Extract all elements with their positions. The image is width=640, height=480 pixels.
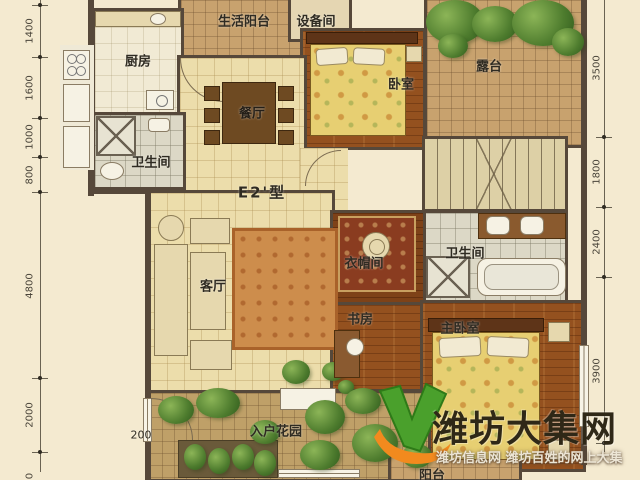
bedroom2-headboard: [306, 32, 418, 44]
dimension-line-right: [604, 0, 605, 452]
kitchen-sink: [150, 13, 166, 25]
label-entry-garden: 入户花园: [250, 421, 302, 440]
dining-chair: [278, 86, 294, 101]
dining-chair: [204, 108, 220, 123]
sink2-right: [520, 216, 544, 235]
label-kitchen: 厨房: [125, 51, 151, 70]
dim-left-1000: 1000: [25, 124, 36, 149]
garden-plant: [158, 396, 194, 424]
dim-left-1600: 1600: [25, 75, 36, 100]
label-living: 客厅: [200, 276, 226, 295]
living-rug: [232, 228, 338, 350]
dim-left-800: 800: [25, 165, 36, 184]
fridge: [63, 84, 90, 122]
label-master-bedroom: 主卧室: [440, 318, 479, 337]
shower2: [426, 256, 470, 298]
garden-plant: [232, 444, 254, 470]
master-nightstand: [548, 322, 570, 342]
watermark-brand: 潍坊大集网: [432, 400, 640, 452]
stove: [63, 50, 90, 80]
garden-plant: [305, 400, 345, 434]
label-terrace: 露台: [476, 56, 502, 75]
washer: [146, 90, 174, 110]
dining-chair: [278, 130, 294, 145]
garden-plant: [300, 440, 340, 470]
terrace-plant: [438, 34, 468, 58]
garden-plant: [254, 450, 276, 476]
label-cloakroom: 衣帽间: [344, 253, 383, 272]
dim-tick: [32, 157, 48, 158]
sink1: [148, 118, 170, 132]
garden-plant: [196, 388, 240, 418]
window-garden: [278, 469, 360, 478]
dim-right-1800: 1800: [592, 159, 603, 184]
potted-plant: [282, 360, 310, 384]
dim-tick: [596, 207, 612, 208]
bathtub: [477, 258, 566, 296]
armchair-bottom: [190, 340, 232, 370]
sink2-left: [486, 216, 510, 235]
dining-chair: [204, 130, 220, 145]
dim-tick: [32, 378, 48, 379]
desk-chair: [346, 338, 364, 356]
toilet1: [100, 162, 124, 180]
dim-left-2000: 2000: [25, 402, 36, 427]
dimension-line-left: [40, 0, 41, 472]
dining-chair: [278, 108, 294, 123]
label-plan-type: E2'型: [238, 182, 286, 203]
bedroom2-nightstand: [406, 46, 422, 62]
wall-step: [88, 188, 151, 194]
staircase: [422, 136, 568, 212]
watermark-tagline: 潍坊信息网 潍坊百姓的网上大集: [436, 447, 640, 466]
dim-tick: [32, 57, 48, 58]
label-bath2: 卫生间: [445, 243, 484, 262]
label-equipment: 设备间: [296, 11, 335, 30]
dim-left-4800: 4800: [25, 273, 36, 298]
shower1: [96, 116, 136, 156]
dim-right-3500: 3500: [592, 55, 603, 80]
garden-plant: [208, 448, 230, 474]
dim-tick: [32, 192, 48, 193]
label-dining: 餐厅: [239, 103, 265, 122]
dim-tick: [32, 5, 48, 6]
kitchen-cabinet: [63, 126, 90, 168]
dim-left-1400: 1400: [25, 18, 36, 43]
armchair-top: [190, 218, 230, 244]
dim-right-2400: 2400: [592, 229, 603, 254]
dim-left-partial: 0: [25, 473, 36, 479]
sofa-long: [154, 244, 188, 356]
dim-tick: [596, 137, 612, 138]
label-entry-dim: 200: [131, 429, 152, 442]
garden-plant: [184, 444, 206, 470]
terrace-plant: [552, 28, 584, 56]
dining-chair: [204, 86, 220, 101]
label-bedroom2: 卧室: [388, 74, 414, 93]
dim-tick: [596, 277, 612, 278]
kitchen-counter: [95, 11, 181, 27]
dim-right-3900: 3900: [592, 358, 603, 383]
label-study: 书房: [347, 309, 373, 328]
dim-tick: [32, 118, 48, 119]
dim-tick: [32, 452, 48, 453]
floorplan-image: 生活阳台 设备间 厨房 卧室 露台 餐厅 卫生间 E2'型 客厅 衣帽间 卫生间…: [0, 0, 640, 480]
label-living-balcony: 生活阳台: [218, 11, 270, 30]
side-table: [158, 215, 184, 241]
label-bath1: 卫生间: [131, 152, 170, 171]
